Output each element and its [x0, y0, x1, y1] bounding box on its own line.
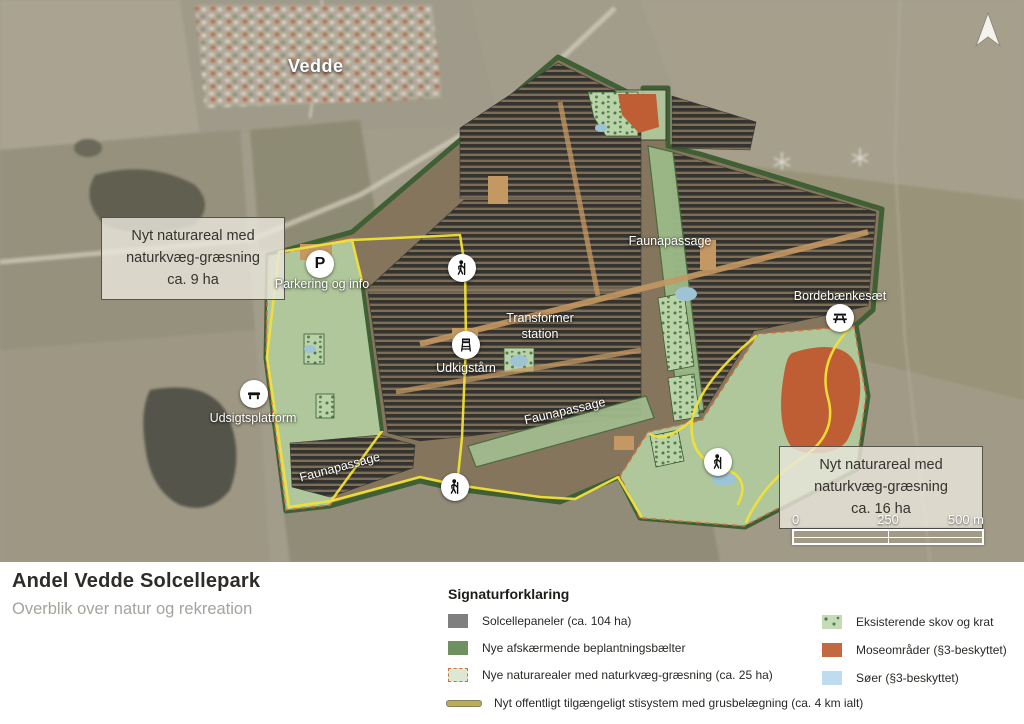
label-faunapassage-top: Faunapassage	[620, 234, 720, 250]
picnic-glyph	[831, 309, 849, 327]
legend-item-existing-forest: Eksisterende skov og krat	[822, 615, 993, 629]
tower-glyph	[457, 336, 475, 354]
hiker-icon	[448, 254, 476, 282]
hiker-glyph	[446, 478, 464, 496]
legend-item-solar-panels: Solcellepaneler (ca. 104 ha)	[448, 614, 631, 628]
legend-item-planting-belts: Nye afskærmende beplantningsbælter	[448, 641, 685, 655]
page: Vedde Nyt naturareal med naturkvæg-græsn…	[0, 0, 1024, 724]
legend-item-path-system: Nyt offentligt tilgængeligt stisystem me…	[446, 696, 863, 710]
map-canvas: Vedde Nyt naturareal med naturkvæg-græsn…	[0, 0, 1024, 562]
legend-label: Eksisterende skov og krat	[856, 615, 993, 629]
viewing-platform-icon	[240, 380, 268, 408]
callout-line: naturkvæg-græsning	[112, 248, 274, 270]
scale-tick-500: 500 m	[948, 512, 984, 527]
callout-line: Nyt naturareal med	[790, 455, 972, 477]
callout-line: ca. 9 ha	[112, 270, 274, 292]
legend-label: Solcellepaneler (ca. 104 ha)	[482, 614, 631, 628]
legend-title: Signaturforklaring	[448, 586, 569, 602]
legend-swatch-planting-belts	[448, 641, 468, 655]
north-arrow-icon	[972, 10, 1004, 50]
scale-tick-250: 250	[877, 512, 899, 527]
scale-bar-labels: 0 250 500 m	[792, 512, 984, 529]
legend-swatch-lakes	[822, 671, 842, 685]
callout-line: naturkvæg-græsning	[790, 477, 972, 499]
scale-bar: 0 250 500 m	[792, 512, 984, 545]
legend-label: Nye naturarealer med naturkvæg-græsning …	[482, 668, 773, 682]
bench-glyph	[245, 385, 263, 403]
label-parking: Parkering og info	[272, 277, 372, 293]
legend-label: Nye afskærmende beplantningsbælter	[482, 641, 685, 655]
parking-letter: P	[315, 256, 326, 272]
callout-line: Nyt naturareal med	[112, 226, 274, 248]
label-line: Transformer	[490, 311, 590, 327]
label-transformer-station: Transformer station	[490, 311, 590, 342]
hiker-glyph	[453, 259, 471, 277]
legend-swatch-solar-panels	[448, 614, 468, 628]
legend-item-lakes: Søer (§3-beskyttet)	[822, 671, 959, 685]
legend-item-nature-areas: Nye naturarealer med naturkvæg-græsning …	[448, 668, 773, 682]
legend-item-bog-areas: Moseområder (§3-beskyttet)	[822, 643, 1007, 657]
lookout-tower-icon	[452, 331, 480, 359]
legend-swatch-path	[446, 700, 482, 707]
legend-swatch-bog	[822, 643, 842, 657]
label-viewing-platform: Udsigtsplatform	[203, 411, 303, 427]
legend-label: Moseområder (§3-beskyttet)	[856, 643, 1007, 657]
parking-icon: P	[306, 250, 334, 278]
hiker-icon	[704, 448, 732, 476]
legend-swatch-nature-areas	[448, 668, 468, 682]
footer: Andel Vedde Solcellepark Overblik over n…	[0, 562, 1024, 724]
callout-nature-9ha: Nyt naturareal med naturkvæg-græsning ca…	[101, 217, 285, 300]
label-line: station	[490, 327, 590, 343]
scale-tick-0: 0	[792, 512, 799, 527]
hiker-icon	[441, 473, 469, 501]
label-lookout-tower: Udkigstårn	[416, 361, 516, 377]
legend-label: Nyt offentligt tilgængeligt stisystem me…	[494, 696, 863, 710]
town-label: Vedde	[288, 55, 344, 78]
label-picnic-table: Bordebænkesæt	[780, 289, 900, 305]
hiker-glyph	[709, 453, 727, 471]
page-subtitle: Overblik over natur og rekreation	[12, 600, 252, 619]
legend-swatch-forest	[822, 615, 842, 629]
picnic-table-icon	[826, 304, 854, 332]
scale-bar-rule	[792, 529, 984, 545]
page-title: Andel Vedde Solcellepark	[12, 570, 260, 593]
legend-label: Søer (§3-beskyttet)	[856, 671, 959, 685]
